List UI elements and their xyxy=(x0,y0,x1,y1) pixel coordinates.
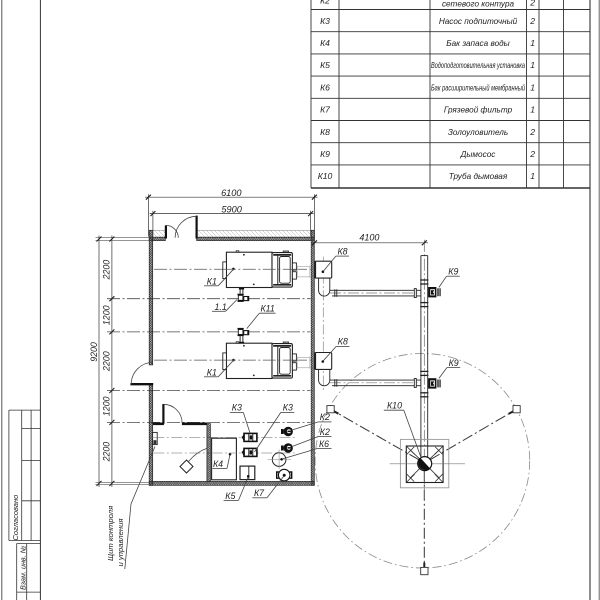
svg-text:К4: К4 xyxy=(320,38,330,48)
svg-text:2200: 2200 xyxy=(102,351,112,372)
svg-text:К8: К8 xyxy=(338,246,348,256)
svg-text:1: 1 xyxy=(530,38,535,48)
svg-text:К3: К3 xyxy=(232,403,242,413)
svg-text:К9: К9 xyxy=(449,358,459,368)
svg-text:К8: К8 xyxy=(320,127,330,137)
svg-text:2200: 2200 xyxy=(102,442,112,463)
svg-text:К5: К5 xyxy=(225,491,235,501)
svg-text:К2: К2 xyxy=(320,427,330,437)
svg-text:Бак запаса воды: Бак запаса воды xyxy=(446,39,509,48)
svg-text:К4: К4 xyxy=(213,459,223,469)
svg-text:Дымосос: Дымосос xyxy=(460,150,496,159)
svg-text:1200: 1200 xyxy=(102,397,112,417)
svg-text:1: 1 xyxy=(530,82,535,92)
svg-text:6100: 6100 xyxy=(221,188,242,198)
svg-text:К2: К2 xyxy=(320,0,330,6)
svg-text:1.1: 1.1 xyxy=(215,302,227,312)
svg-text:К5: К5 xyxy=(320,60,330,70)
svg-text:2: 2 xyxy=(529,127,535,137)
svg-text:и управления: и управления xyxy=(116,518,125,566)
svg-text:Взам. инв. №: Взам. инв. № xyxy=(18,545,27,590)
svg-text:1: 1 xyxy=(530,60,535,70)
svg-text:К1: К1 xyxy=(207,276,217,286)
svg-text:К1: К1 xyxy=(207,367,217,377)
svg-text:1: 1 xyxy=(530,171,535,181)
svg-text:К2: К2 xyxy=(320,412,330,422)
svg-text:К8: К8 xyxy=(338,337,348,347)
svg-text:К11: К11 xyxy=(261,304,275,314)
svg-text:К7: К7 xyxy=(254,488,265,498)
svg-text:Грязевой фильтр: Грязевой фильтр xyxy=(444,106,513,115)
svg-text:К3: К3 xyxy=(320,16,330,26)
svg-text:2: 2 xyxy=(529,0,535,8)
svg-text:К7: К7 xyxy=(320,105,331,115)
svg-text:2: 2 xyxy=(529,149,535,159)
svg-text:К6: К6 xyxy=(319,439,329,449)
svg-text:Бак расширительный мембранный: Бак расширительный мембранный xyxy=(431,82,525,92)
svg-text:К9: К9 xyxy=(448,267,458,277)
svg-text:4100: 4100 xyxy=(359,233,379,243)
svg-text:Насос подпиточный: Насос подпиточный xyxy=(439,17,518,26)
svg-text:1200: 1200 xyxy=(102,305,112,325)
svg-text:К10: К10 xyxy=(318,171,333,181)
svg-text:К6: К6 xyxy=(320,82,330,92)
svg-text:сетевого контура: сетевого контура xyxy=(442,0,515,9)
svg-text:2: 2 xyxy=(529,16,535,26)
svg-text:1: 1 xyxy=(530,105,535,115)
svg-text:Согласовано: Согласовано xyxy=(11,495,20,541)
svg-text:К3: К3 xyxy=(283,403,293,413)
svg-text:9200: 9200 xyxy=(89,342,99,362)
svg-text:Труба дымовая: Труба дымовая xyxy=(449,172,508,181)
svg-text:2200: 2200 xyxy=(102,260,112,281)
svg-text:К10: К10 xyxy=(387,401,402,411)
svg-text:Щит контроля: Щит контроля xyxy=(106,506,115,561)
svg-text:Золоуловитель: Золоуловитель xyxy=(448,128,508,137)
svg-text:Водоподготовительная установка: Водоподготовительная установка xyxy=(431,60,525,70)
svg-text:К9: К9 xyxy=(320,149,330,159)
svg-text:5900: 5900 xyxy=(221,204,242,214)
